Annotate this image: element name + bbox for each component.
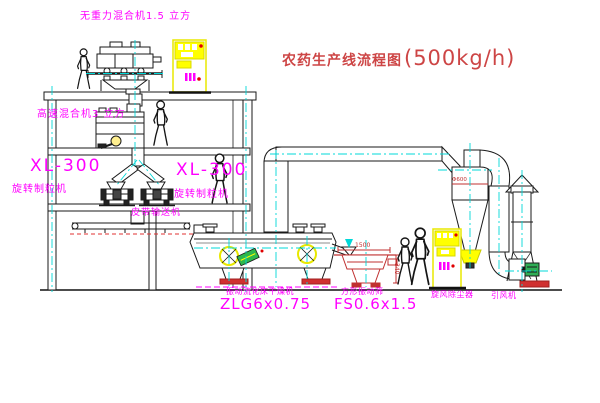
- granulator-feed-chute: [107, 164, 165, 189]
- indicator-light-icon: [454, 233, 457, 236]
- indicator-light-icon: [197, 77, 201, 81]
- flow-diagram-canvas: 农药生产线流程图 (500kg/h) 无重力混合机1.5 立方 高速混合机3 立…: [0, 0, 600, 403]
- label-fan: 引风机: [491, 292, 517, 300]
- indicator-light-icon: [199, 44, 203, 48]
- person-figure: [412, 228, 429, 284]
- person-figure: [398, 238, 412, 284]
- label-granulator-left-name: 旋转制粒机: [12, 185, 67, 195]
- diagram-title-capacity: (500kg/h): [404, 46, 515, 70]
- indicator-light-icon: [451, 264, 454, 267]
- vibrating-screen: [334, 247, 399, 287]
- dim-screen-height: 340: [393, 263, 399, 274]
- control-cabinet-2: [429, 229, 466, 288]
- granulator-left: [99, 189, 135, 206]
- granulator-right: [139, 189, 175, 206]
- label-granulator-right-name: 旋转制粒机: [174, 190, 229, 200]
- dim-screen-length: 1500: [355, 243, 370, 249]
- label-screen-model: FS0.6x1.5: [334, 297, 417, 312]
- diagram-title-text: 农药生产线流程图: [282, 50, 402, 70]
- diagram-title: 农药生产线流程图 (500kg/h): [282, 46, 515, 70]
- label-dryer-model: ZLG6x0.75: [220, 297, 311, 312]
- label-granulator-right-model: XL-300: [176, 162, 247, 179]
- dim-cyclone-diameter: Φ600: [452, 178, 467, 184]
- fan-motor-icon: [525, 263, 539, 276]
- induced-draft-fan: [509, 259, 549, 287]
- label-gravity-free-mixer: 无重力混合机1.5 立方: [80, 12, 191, 22]
- control-cabinet-1: [169, 40, 211, 93]
- label-high-speed-mixer: 高速混合机3 立方: [37, 110, 126, 120]
- fluid-bed-dryer: [190, 224, 356, 287]
- person-figure: [78, 49, 90, 89]
- exhaust-duct: [264, 147, 460, 232]
- label-granulator-left-model: XL-300: [30, 158, 101, 175]
- label-cyclone: 旋风除尘器: [431, 291, 474, 299]
- label-belt-conveyor: 皮带输送机: [131, 209, 181, 218]
- person-figure: [154, 101, 167, 145]
